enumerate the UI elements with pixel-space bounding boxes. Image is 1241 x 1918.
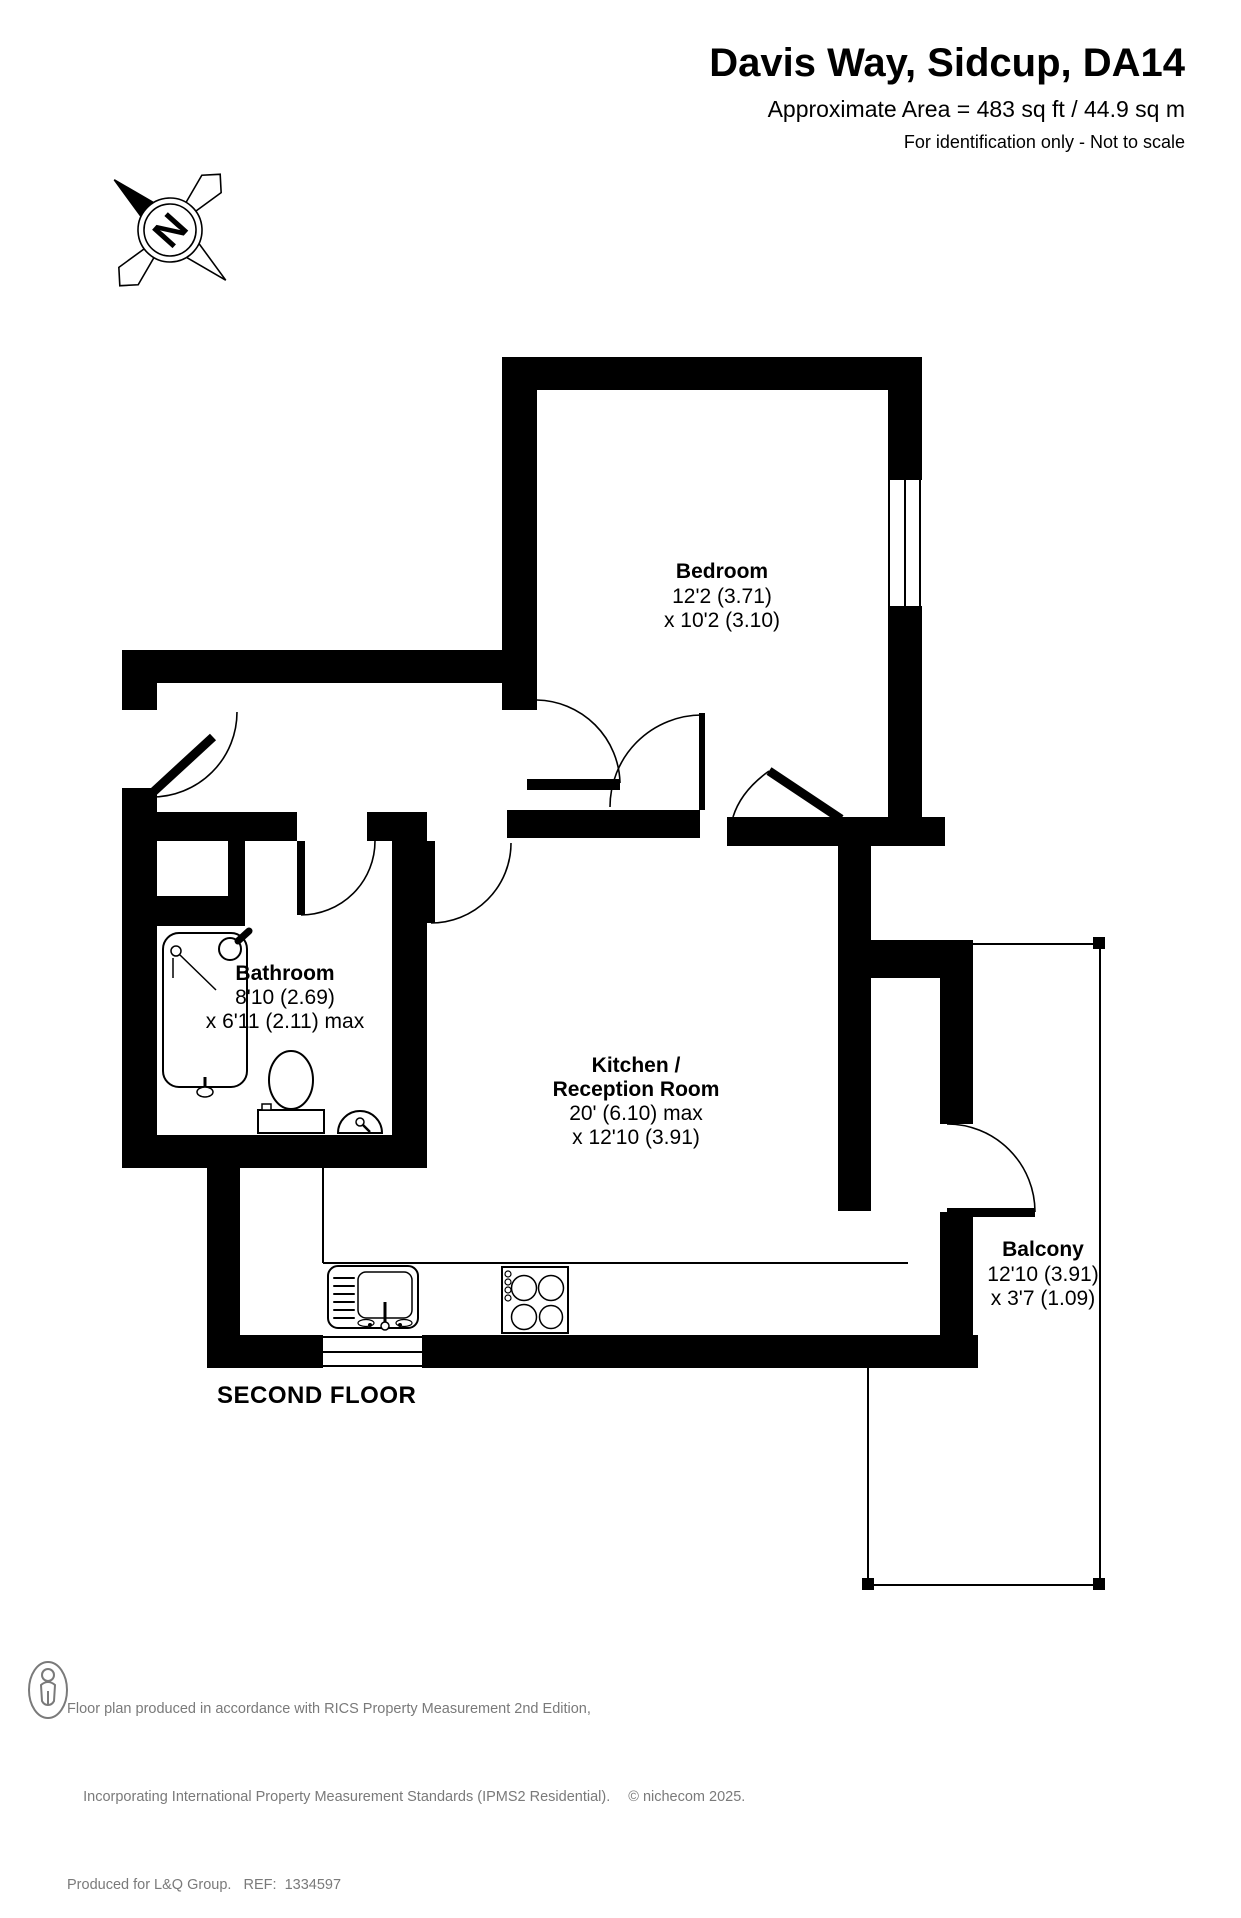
footer-line1: Floor plan produced in accordance with R… <box>67 1698 745 1720</box>
wall-bathroom-duct-vertical <box>228 841 245 896</box>
kitchen-sink-fixture <box>328 1266 418 1330</box>
wall-bathroom-duct-horizontal <box>157 896 245 926</box>
balcony-post-top-right <box>1093 937 1105 949</box>
footer-copyright: © nichecom 2025. <box>628 1789 745 1805</box>
compass-north-icon: N <box>64 124 276 336</box>
kitchen-dim2: x 12'10 (3.91) <box>572 1126 700 1149</box>
front-door <box>150 712 237 797</box>
bedroom-kitchen-door <box>733 771 841 819</box>
kitchen-counter <box>323 1168 908 1263</box>
floorplan-drawing: N <box>0 0 1241 1755</box>
wall-bathroom-bottom <box>122 1135 427 1168</box>
hall-kitchen-door <box>610 713 705 810</box>
wall-kitchen-bottom-left <box>207 1335 323 1368</box>
kitchen-window <box>323 1337 422 1366</box>
wall-kitchen-right-upper <box>838 846 871 1211</box>
bedroom-label: Bedroom <box>676 560 768 583</box>
kitchen-label-line2: Reception Room <box>553 1078 720 1101</box>
wall-bedroom-right-lower <box>888 608 922 846</box>
balcony-dim1: 12'10 (3.91) <box>987 1263 1098 1286</box>
wall-kitchen-bottom-right <box>422 1335 978 1368</box>
bedroom-door <box>527 700 620 790</box>
balcony-post-bottom-left <box>862 1578 874 1590</box>
walls <box>122 357 978 1368</box>
wall-bathroom-top-left <box>157 812 297 841</box>
kitchen-label-line1: Kitchen / <box>592 1054 681 1077</box>
wall-kitchen-left-lower <box>207 1168 240 1335</box>
bathroom-label: Bathroom <box>235 962 334 985</box>
bedroom-window <box>888 478 922 608</box>
wall-bedroom-right-upper <box>888 390 922 478</box>
wall-balcony-lower <box>940 1212 973 1335</box>
bedroom-dim1: 12'2 (3.71) <box>672 585 772 608</box>
wall-bathroom-right <box>392 841 427 1135</box>
wall-balcony-upper <box>940 978 973 1124</box>
kitchen-door <box>427 841 511 923</box>
kitchen-dim1: 20' (6.10) max <box>569 1102 703 1125</box>
balcony-label: Balcony <box>1002 1238 1084 1261</box>
bath-tap-icon <box>197 1087 213 1097</box>
footer-line3: Produced for L&Q Group. REF: 1334597 <box>67 1874 745 1896</box>
wall-hall-top <box>122 650 537 683</box>
bathroom-dim1: 8'10 (2.69) <box>235 986 335 1009</box>
balcony-door <box>947 1124 1035 1217</box>
bathroom-door <box>297 841 375 915</box>
wall-kitchen-top-right <box>727 817 945 846</box>
wall-left-upper <box>122 683 157 710</box>
hob-fixture <box>502 1267 568 1333</box>
floorplan-page: { "header": { "title": "Davis Way, Sidcu… <box>0 0 1241 1755</box>
wall-bathroom-top-right <box>367 812 427 841</box>
floor-label: SECOND FLOOR <box>217 1382 416 1409</box>
wall-left-lower <box>122 788 157 1135</box>
wall-balcony-step <box>869 940 973 978</box>
toilet-fixture <box>258 1051 324 1133</box>
footer-line2: Incorporating International Property Mea… <box>83 1789 610 1805</box>
person-icon <box>26 1660 72 1722</box>
balcony-post-bottom-right <box>1093 1578 1105 1590</box>
wall-bedroom-top <box>502 357 922 390</box>
bathroom-dim2: x 6'11 (2.11) max <box>206 1010 365 1033</box>
footer: Floor plan produced in accordance with R… <box>67 1654 745 1918</box>
balcony-dim2: x 3'7 (1.09) <box>991 1287 1095 1310</box>
basin-fixture <box>338 1111 382 1133</box>
wall-kitchen-top-left <box>507 810 700 838</box>
bedroom-dim2: x 10'2 (3.10) <box>664 609 780 632</box>
